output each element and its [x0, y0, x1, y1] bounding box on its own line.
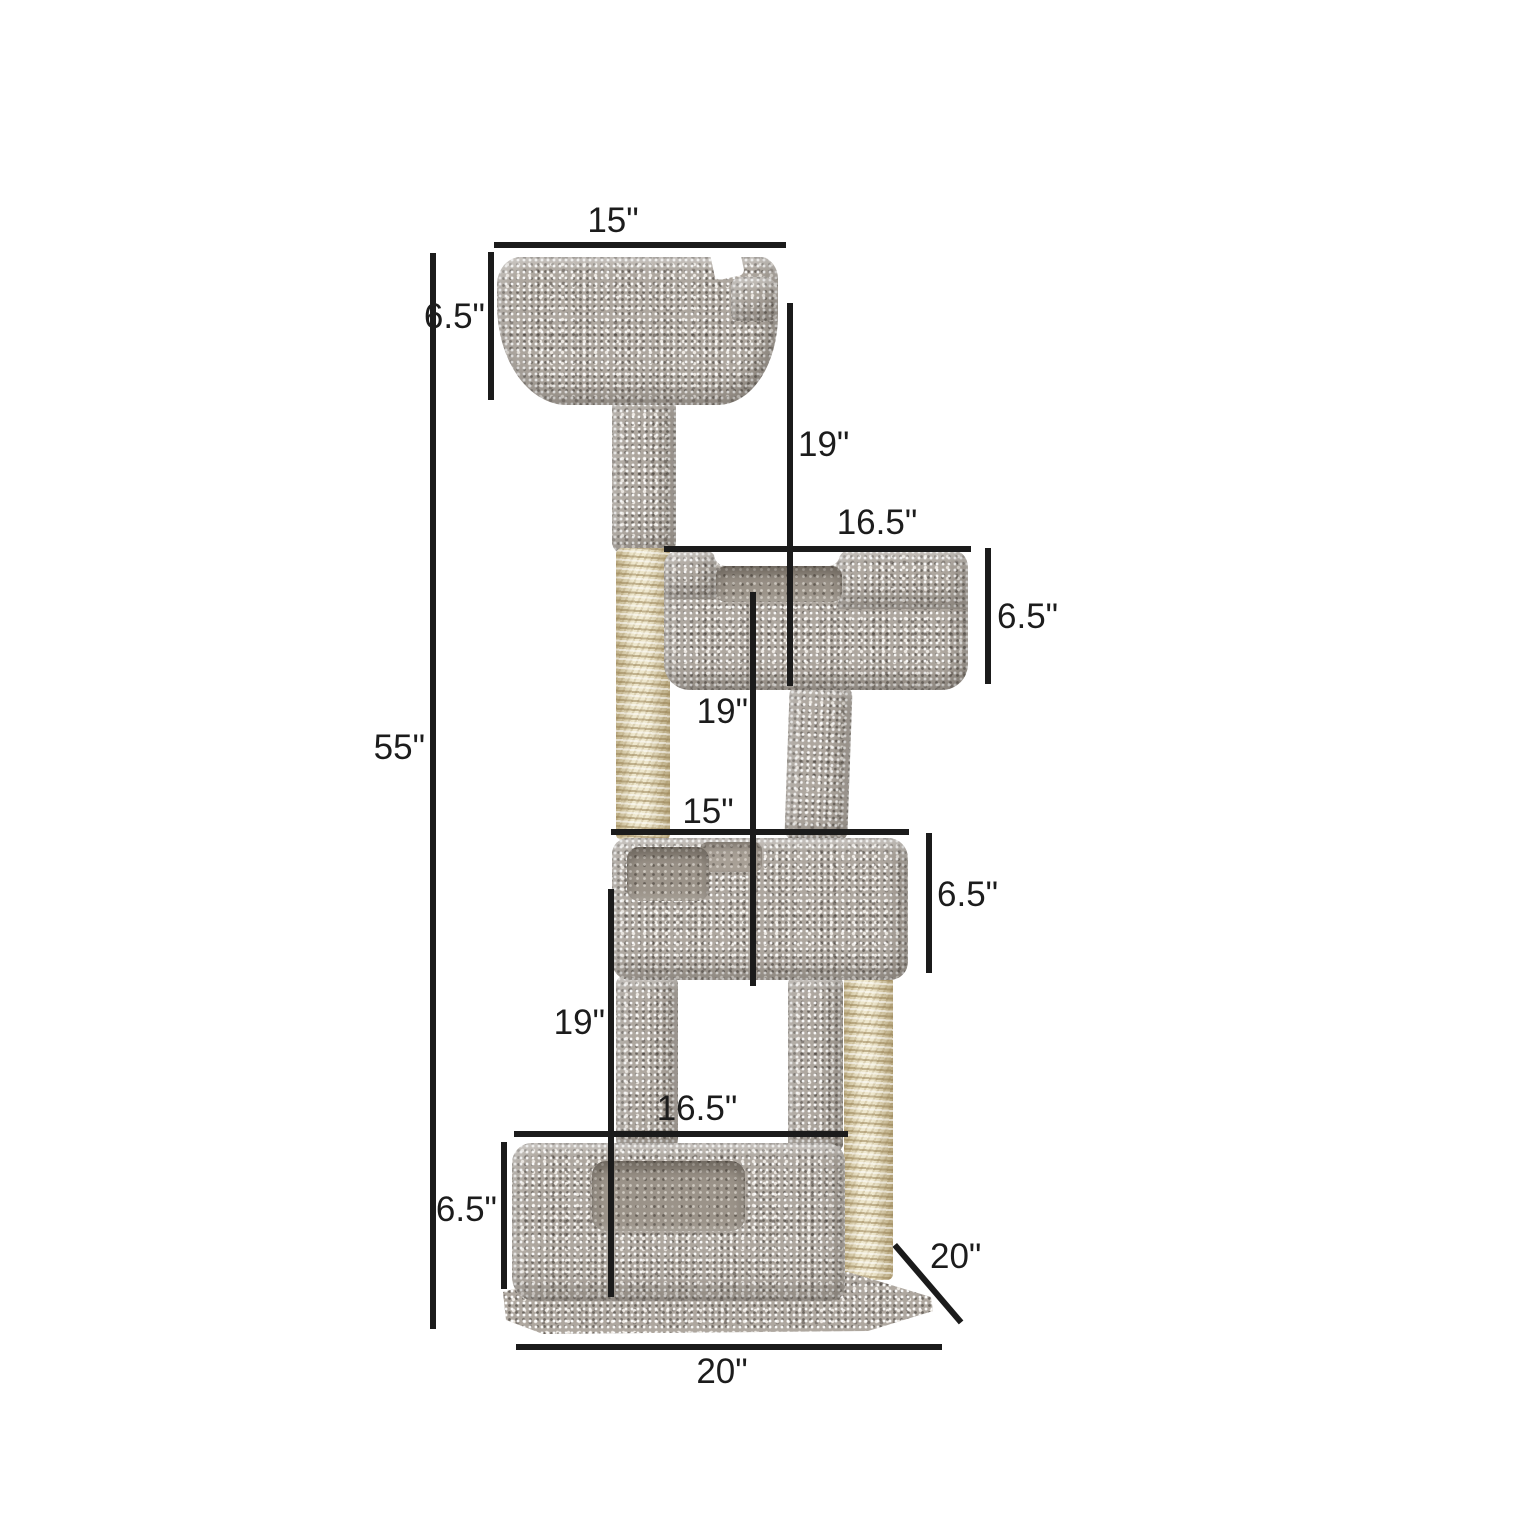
dim-label-third-gap-height: 19" [515, 1004, 605, 1042]
dim-line-top-bed-height [488, 252, 494, 400]
middle-post-carpeted [784, 683, 852, 843]
dim-line-base-width [516, 1344, 942, 1350]
dim-label-second-gap-height: 19" [658, 693, 748, 731]
second-level-bed-interior [716, 566, 842, 602]
top-perch-entry-notch [709, 243, 745, 281]
dim-line-second-width [664, 546, 971, 552]
lower-post-sisal-rope [844, 976, 893, 1280]
dim-label-third-bed-height: 6.5" [937, 876, 998, 914]
dim-label-top-width: 15" [553, 202, 673, 240]
dim-line-second-gap-height [750, 592, 756, 986]
dim-label-second-width: 16.5" [817, 504, 937, 542]
dim-label-base-depth: 20" [930, 1238, 981, 1276]
third-level-bed-interior [627, 847, 709, 901]
dim-line-second-bed-height [985, 548, 991, 684]
lower-middle-post-carpeted [788, 976, 843, 1152]
dim-label-base-width: 20" [662, 1353, 782, 1391]
base-level-bed-interior [592, 1161, 745, 1231]
top-post-carpeted [612, 396, 676, 554]
dim-label-top-gap-height: 19" [798, 426, 849, 464]
dim-line-top-gap-height [787, 303, 793, 686]
dim-line-total-height [430, 253, 436, 1329]
cat-tree-dimension-diagram: 15" 6.5" 55" 19" 16.5" 6.5" 19" 15" 6.5"… [0, 0, 1520, 1520]
dim-label-third-width: 15" [648, 793, 768, 831]
dim-line-third-bed-height [926, 833, 932, 973]
dim-line-base-bed-width [514, 1131, 848, 1137]
dim-label-total-height: 55" [335, 729, 425, 767]
dim-line-top-width [494, 242, 786, 248]
dim-label-top-bed-height: 6.5" [395, 298, 485, 336]
dim-line-third-gap-height [608, 889, 614, 1297]
second-level-bed-left-rim [664, 551, 716, 599]
dim-label-base-bed-width: 16.5" [637, 1090, 757, 1128]
dim-label-second-bed-height: 6.5" [997, 598, 1058, 636]
dim-label-base-bed-height: 6.5" [407, 1191, 497, 1229]
second-level-bed-back-wall [838, 549, 968, 609]
top-perch-rim-bump [731, 277, 778, 321]
dim-line-base-bed-height [501, 1142, 507, 1289]
